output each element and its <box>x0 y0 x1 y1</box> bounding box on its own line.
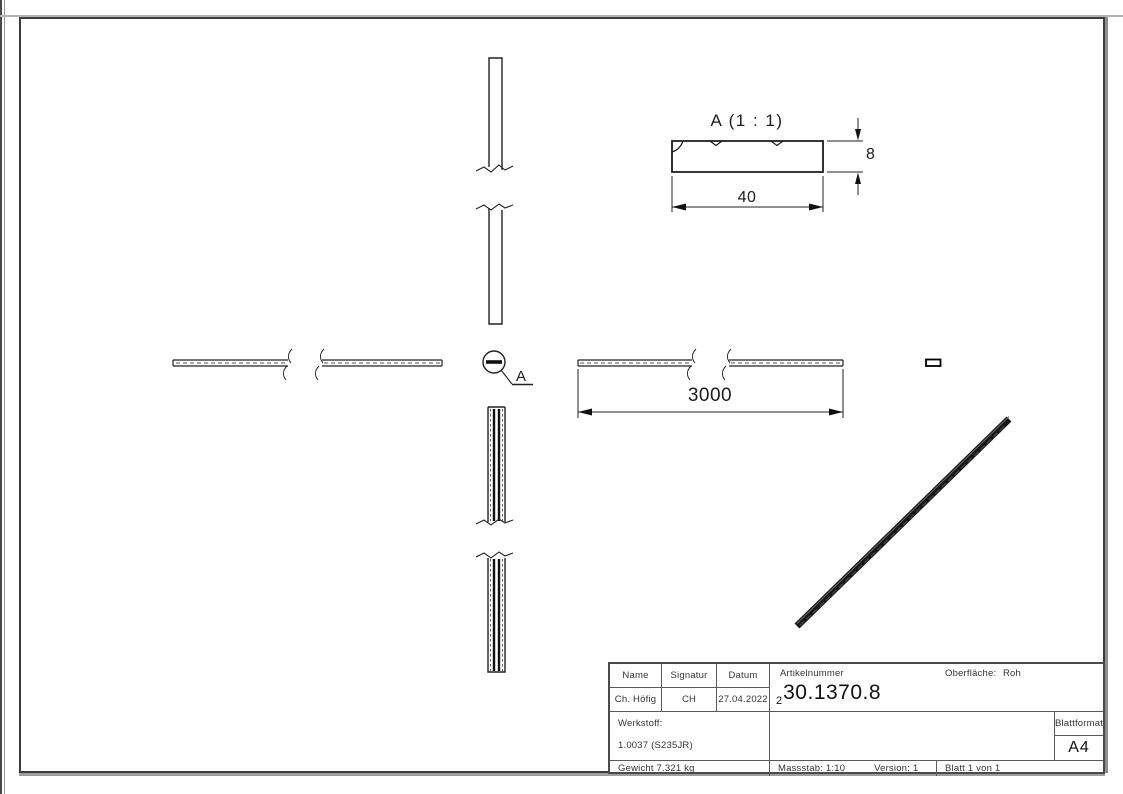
drawing-sheet: A (1 : 1) 8 40 3000 A Name Signatur Datu… <box>0 0 1123 794</box>
artikelnummer-label: Artikelnummer <box>780 668 844 679</box>
blattformat-label-cell: Blattformat <box>1055 712 1103 736</box>
werkstoff-cell: Werkstoff: 1.0037 (S235JR) <box>610 712 770 761</box>
gewicht-cell: Gewicht 7.321 kg <box>610 761 770 776</box>
werkstoff-value: 1.0037 (S235JR) <box>618 740 693 751</box>
artikelnummer-cell: Artikelnummer Oberfläche: Roh 230.1370.8 <box>770 664 1103 712</box>
height-dimension <box>827 118 863 195</box>
width-dimension-text: 40 <box>727 189 767 207</box>
isometric-view <box>797 417 1009 627</box>
name-header-cell: Name <box>610 664 662 688</box>
massstab-cell: Massstab: 1:10 Version: 1 <box>770 761 937 776</box>
datum-header-cell: Datum <box>717 664 770 688</box>
artikelnummer-prefix: 2 <box>776 695 782 707</box>
left-front-view <box>173 349 442 380</box>
name-value-cell: Ch. Höfig <box>610 688 662 712</box>
top-side-view <box>476 58 513 324</box>
version-value: Version: 1 <box>874 763 918 774</box>
right-top-view <box>578 349 843 380</box>
massstab-value: Massstab: 1:10 <box>778 763 845 774</box>
werkstoff-label: Werkstoff: <box>618 718 662 729</box>
detail-callout-label: A <box>516 368 527 385</box>
end-view <box>926 360 941 367</box>
signatur-value-cell: CH <box>662 688 717 712</box>
signatur-header-cell: Signatur <box>662 664 717 688</box>
datum-value-cell: 27.04.2022 <box>717 688 770 712</box>
detail-view-a <box>672 141 823 172</box>
oberflaeche-value: Roh <box>1003 668 1021 679</box>
length-dimension-text: 3000 <box>676 385 744 407</box>
oberflaeche-label: Oberfläche: <box>945 668 996 679</box>
detail-view-title: A (1 : 1) <box>687 111 807 131</box>
artikelnummer-number: 30.1370.8 <box>783 681 881 704</box>
bottom-side-view <box>476 407 513 672</box>
artikelnummer-value: 230.1370.8 <box>776 681 881 705</box>
blattformat-value-cell: A4 <box>1055 736 1103 761</box>
height-dimension-text: 8 <box>866 146 875 164</box>
blatt-cell: Blatt 1 von 1 <box>937 761 1103 776</box>
empty-cell <box>770 712 1055 761</box>
title-block: Name Signatur Datum Ch. Höfig CH 27.04.2… <box>608 662 1105 774</box>
